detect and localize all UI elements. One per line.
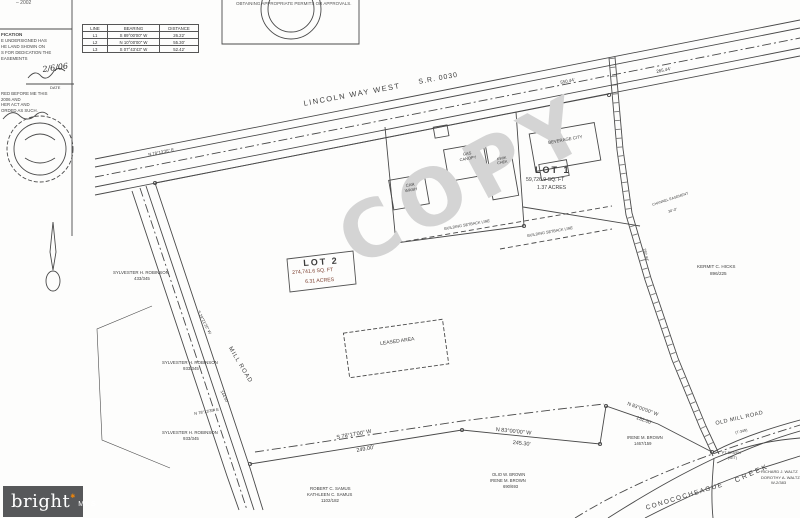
cell-distance: 52.42' (160, 46, 199, 53)
table-row: L3 S 07°43'43" W 52.42' (83, 46, 199, 53)
owner-robinson-1-deed: 433/345 (134, 277, 150, 282)
notary-seal (7, 116, 73, 182)
cell-bearing: N 10°00'00" W (108, 39, 160, 46)
date-label: DATE (50, 86, 60, 90)
brightmls-star-icon: ✱ (70, 493, 75, 500)
line-bearing-table: LINE BEARING DISTANCE L1 S 89°00'00" W 2… (82, 24, 199, 53)
old-mill-road-lines (713, 420, 800, 463)
table-row: L1 S 89°00'00" W 26.22' (83, 32, 199, 39)
notary-line: RED BEFORE ME THIS (1, 91, 47, 97)
owner-robinson-3-deed: 933/345 (183, 437, 199, 442)
table-header-distance: DISTANCE (160, 25, 199, 32)
pin-note-2: (SET) (728, 457, 737, 461)
cell-bearing: S 89°00'00" W (108, 32, 160, 39)
year-note: – 2002 (16, 1, 31, 7)
notary-line: ORDED AS SUCH. (1, 108, 47, 114)
channel-easement-lines (609, 57, 719, 456)
mill-road-lines (132, 183, 263, 510)
table-header-line: LINE (83, 25, 108, 32)
owner-waltz-deed: W-2/383 (771, 481, 786, 485)
lot1-title: LOT 1 (535, 166, 571, 176)
cell-distance: 26.22' (160, 32, 199, 39)
plat-sheet: COPY LINE BEARING DISTANCE L1 S 89°00'00… (0, 0, 800, 518)
owner-hicks-deed: 896/225 (710, 271, 727, 276)
brightmls-logo: bright ✱ MLS (3, 486, 83, 517)
lot1-acres: 1.37 ACRES (537, 186, 566, 192)
cell-line: L3 (83, 46, 108, 53)
owner-hicks-name: KERMIT C. HICKS (697, 264, 735, 269)
interior-dashdot-line (255, 404, 604, 452)
cell-bearing: S 07°43'43" W (108, 46, 160, 53)
owner-brown-name-2: IRENE M. BROWN (490, 479, 526, 484)
table-header-bearing: BEARING (108, 25, 160, 32)
lot1-area: 59,726.9 SQ. FT (526, 178, 564, 184)
certification-line: S FOR DEDICATION THE (1, 50, 51, 56)
owner-brown-name-1: OLIO W. BROWN (492, 473, 525, 478)
cell-distance: 55.30' (160, 39, 199, 46)
owner-irene-name: IRENE M. BROWN (627, 436, 663, 441)
cell-line: L1 (83, 32, 108, 39)
brightmls-wordmark: bright (11, 491, 70, 512)
north-arrow-icon (46, 222, 60, 291)
owner-waltz-name-1: RICHARD J. WALTZ (761, 470, 798, 474)
header-note: OBTAINING APPROPRIATE PERMITS OR APPROVA… (236, 2, 352, 7)
certification-block: FICATION E UNDERSIGNED HAS HE LAND SHOWN… (1, 32, 51, 61)
brightmls-suffix: MLS (78, 501, 97, 508)
notary-block: RED BEFORE ME THIS 2006 AND HER ACT AND … (1, 91, 47, 113)
cell-line: L2 (83, 39, 108, 46)
table-row: L2 N 10°00'00" W 55.30' (83, 39, 199, 46)
certification-line: EASEMENTS (1, 56, 51, 62)
left-parcel-lines (97, 306, 170, 468)
owner-robinson-2-deed: 933/345 (183, 367, 199, 372)
owner-samus-deed: 1102/182 (321, 499, 339, 504)
certification-line: HE LAND SHOWN ON (1, 44, 51, 50)
owner-irene-deed: 1467/159 (634, 442, 651, 447)
owner-brown-deed: 690/693 (503, 485, 518, 490)
